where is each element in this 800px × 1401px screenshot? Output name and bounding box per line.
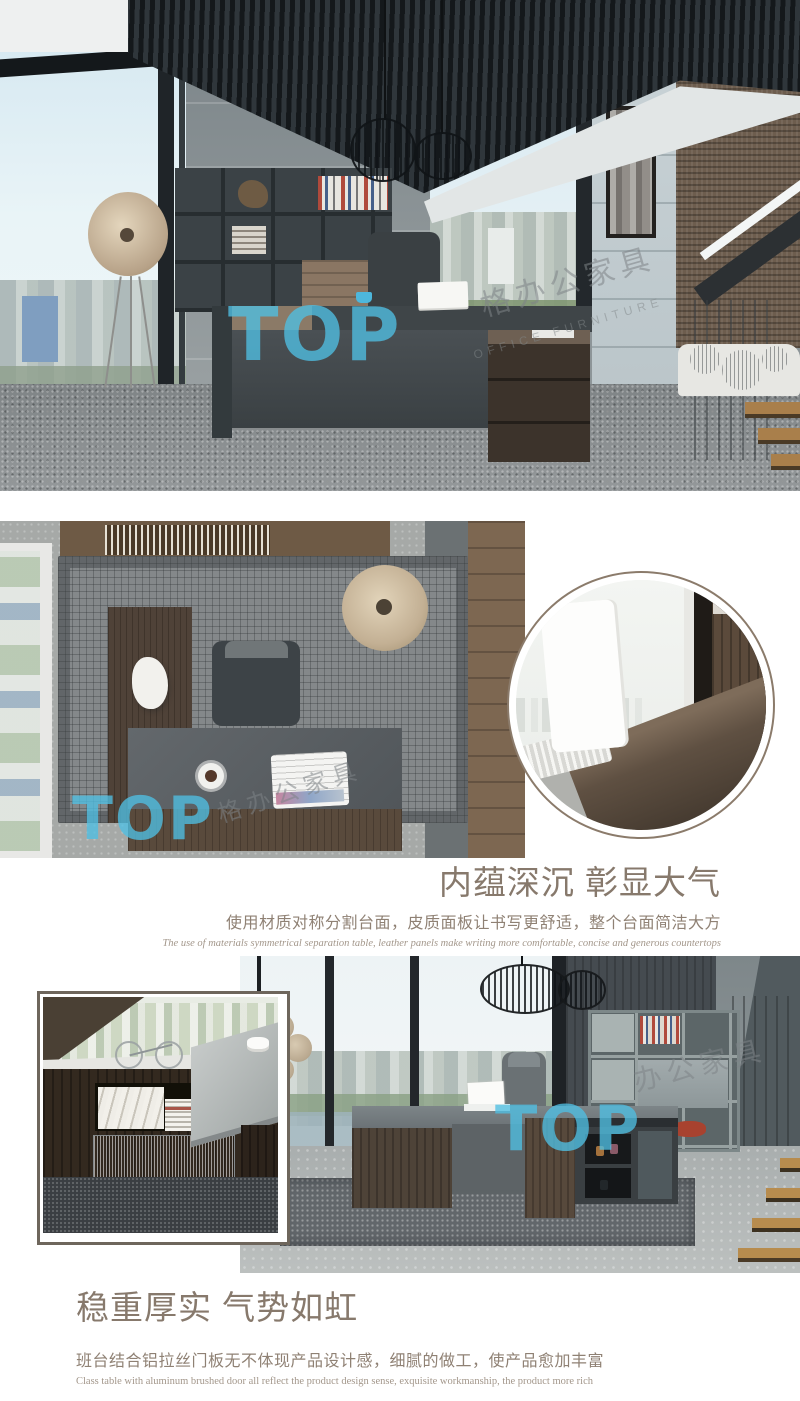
stair-tread [738, 1248, 800, 1262]
lamp-cord [441, 0, 443, 134]
open-cubby [585, 1168, 631, 1198]
stair-tread [758, 428, 800, 444]
detail-circle [507, 571, 775, 839]
knot-lamp-center [376, 599, 392, 615]
top-watermark: TOP [228, 298, 402, 372]
wire-cage-pendant-lamp [414, 132, 472, 180]
stair-tread [766, 1188, 800, 1202]
cubby-item [600, 1180, 608, 1190]
desk-top-view-photo: TOP 格办公家具 [0, 521, 525, 858]
feature-subheading-1: 使用材质对称分割台面，皮质面板让书写更舒适，整个台面简洁大方 [162, 909, 721, 933]
wire-ball-decor [722, 350, 762, 390]
wire-cage-pendant-lamp [350, 118, 416, 182]
inset-detail-frame [37, 991, 290, 1245]
coffee-surface [205, 770, 217, 782]
white-tower [488, 228, 514, 284]
wire-cage-pendant-lamp [480, 964, 570, 1014]
shelf-cell [592, 1014, 634, 1052]
wire-ball-decor [762, 346, 788, 372]
lamp-leg [130, 276, 132, 388]
detail-laptop-screen [540, 599, 627, 753]
wire-cage-pendant-lamp [558, 970, 606, 1010]
feature-heading-2: 稳重厚实 气势如虹 [76, 1291, 604, 1326]
feature-subheading-2: 班台结合铝拉丝门板无不体现产品设计感，细腻的做工，使产品愈加丰富 [76, 1347, 604, 1371]
shelf-decor [238, 180, 268, 208]
lamp-cord [384, 0, 386, 120]
stair-tread [780, 1158, 800, 1172]
hero-office-photo: TOP 格办公家具 OFFICE FURNITURE [0, 0, 800, 491]
return-cabinet [488, 338, 590, 462]
bottom-office-photo: TOP 办公家具 [240, 956, 800, 1273]
feature-heading-1: 内蕴深沉 彰显大气 [162, 866, 721, 901]
inset-leaning-books [98, 1087, 164, 1129]
stair-tread [745, 402, 800, 418]
feature-block-2: 稳重厚实 气势如虹 班台结合铝拉丝门板无不体现产品设计感，细腻的做工，使产品愈加… [76, 1291, 604, 1387]
magazine-rack [105, 525, 270, 555]
top-watermark: TOP [495, 1098, 641, 1160]
blue-building [22, 296, 58, 362]
knot-lamp-center [120, 228, 134, 242]
book-stack [232, 226, 266, 254]
window-city-view [0, 551, 40, 851]
top-watermark: TOP [72, 789, 214, 849]
chair-headrest [508, 1052, 540, 1067]
inset-coffee-cup [247, 1037, 269, 1049]
stair-tread [752, 1218, 800, 1232]
feature-caption-en-1: The use of materials symmetrical separat… [162, 938, 721, 949]
feature-block-1: 内蕴深沉 彰显大气 使用材质对称分割台面，皮质面板让书写更舒适，整个台面简洁大方… [162, 866, 721, 949]
wire-ball-decor [690, 344, 720, 374]
product-detail-page: TOP 格办公家具 OFFICE FURNITURE TOP 格办公家具 [0, 0, 800, 1401]
inset-detail-photo [43, 997, 278, 1233]
stair-tread [771, 454, 800, 470]
desk-wood-panel-left [352, 1128, 452, 1208]
shelf-books [640, 1016, 680, 1044]
inset-dark-carpet [43, 1177, 278, 1233]
detail-circle-photo [516, 580, 766, 830]
cabinet-door [638, 1131, 672, 1199]
feature-caption-en-2: Class table with aluminum brushed door a… [76, 1376, 604, 1387]
white-ceiling-corner [0, 0, 150, 52]
chair-headrest [225, 641, 288, 658]
laptop [418, 281, 469, 309]
inset-aluminum-door [93, 1135, 235, 1179]
